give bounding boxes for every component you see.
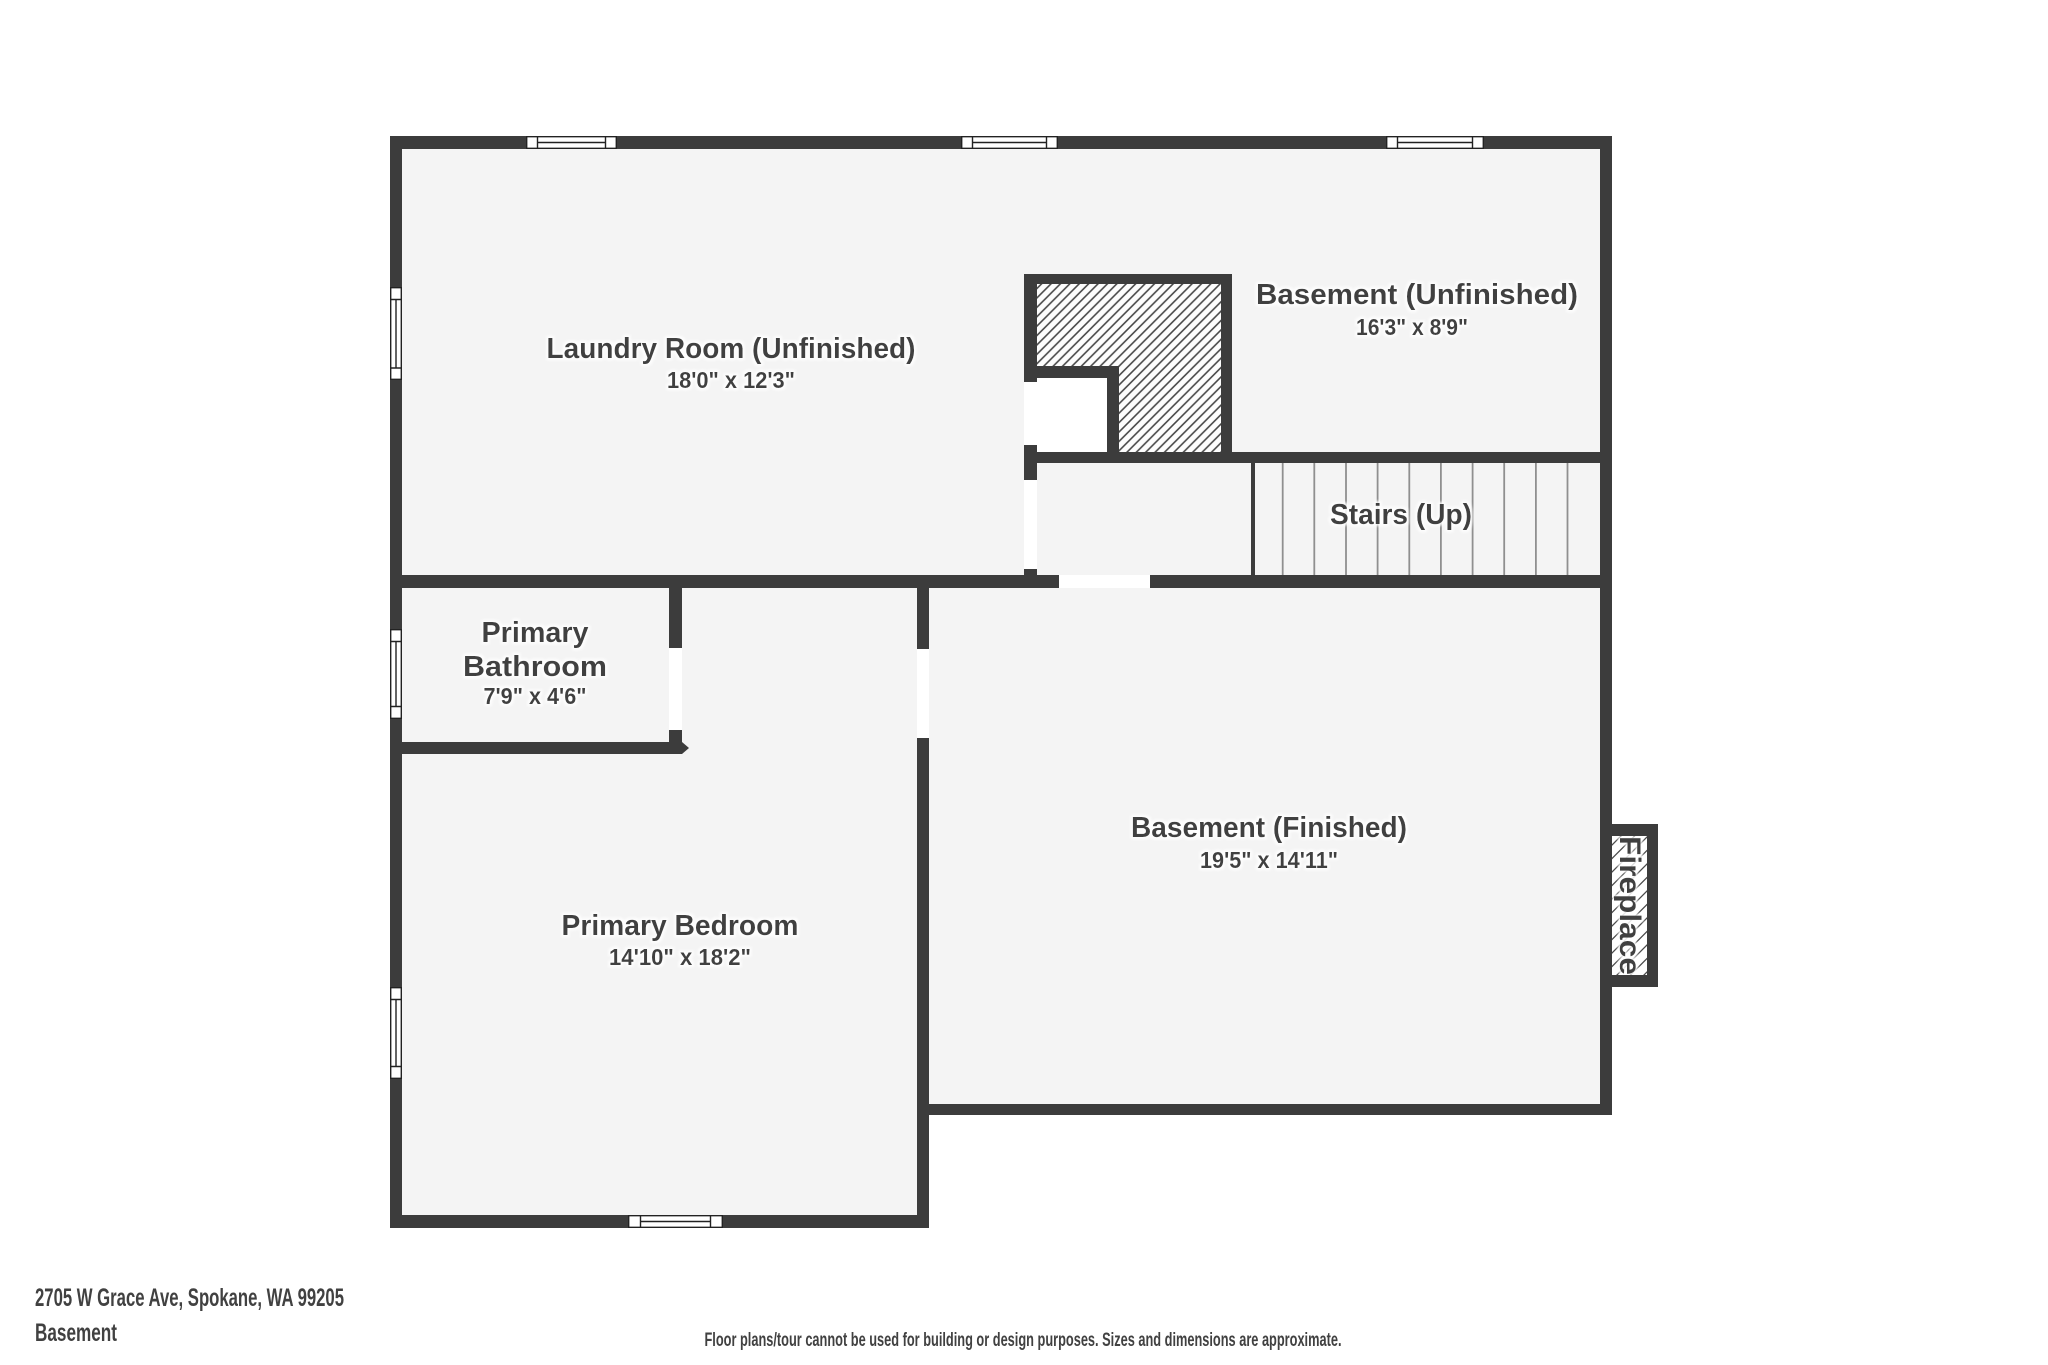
svg-text:Primary Bedroom: Primary Bedroom <box>562 910 799 942</box>
svg-text:Bathroom: Bathroom <box>463 651 607 683</box>
svg-text:19'5" x 14'11": 19'5" x 14'11" <box>1200 847 1338 873</box>
svg-text:Stairs (Up): Stairs (Up) <box>1330 499 1472 531</box>
svg-text:Floor plans/tour cannot be use: Floor plans/tour cannot be used for buil… <box>705 1330 1342 1351</box>
svg-text:18'0" x 12'3": 18'0" x 12'3" <box>667 367 795 393</box>
svg-text:16'3" x 8'9": 16'3" x 8'9" <box>1356 314 1468 340</box>
svg-text:2705 W Grace Ave, Spokane, WA: 2705 W Grace Ave, Spokane, WA 99205 <box>35 1284 344 1312</box>
svg-text:Laundry Room (Unfinished): Laundry Room (Unfinished) <box>547 333 916 365</box>
svg-text:14'10" x 18'2": 14'10" x 18'2" <box>609 944 751 970</box>
svg-text:Primary: Primary <box>482 617 589 649</box>
svg-text:Fireplace: Fireplace <box>1613 836 1646 975</box>
svg-text:Basement (Unfinished): Basement (Unfinished) <box>1256 279 1578 311</box>
svg-text:7'9" x 4'6": 7'9" x 4'6" <box>484 683 587 709</box>
svg-text:Basement (Finished): Basement (Finished) <box>1131 812 1407 844</box>
svg-text:Basement: Basement <box>35 1319 117 1347</box>
